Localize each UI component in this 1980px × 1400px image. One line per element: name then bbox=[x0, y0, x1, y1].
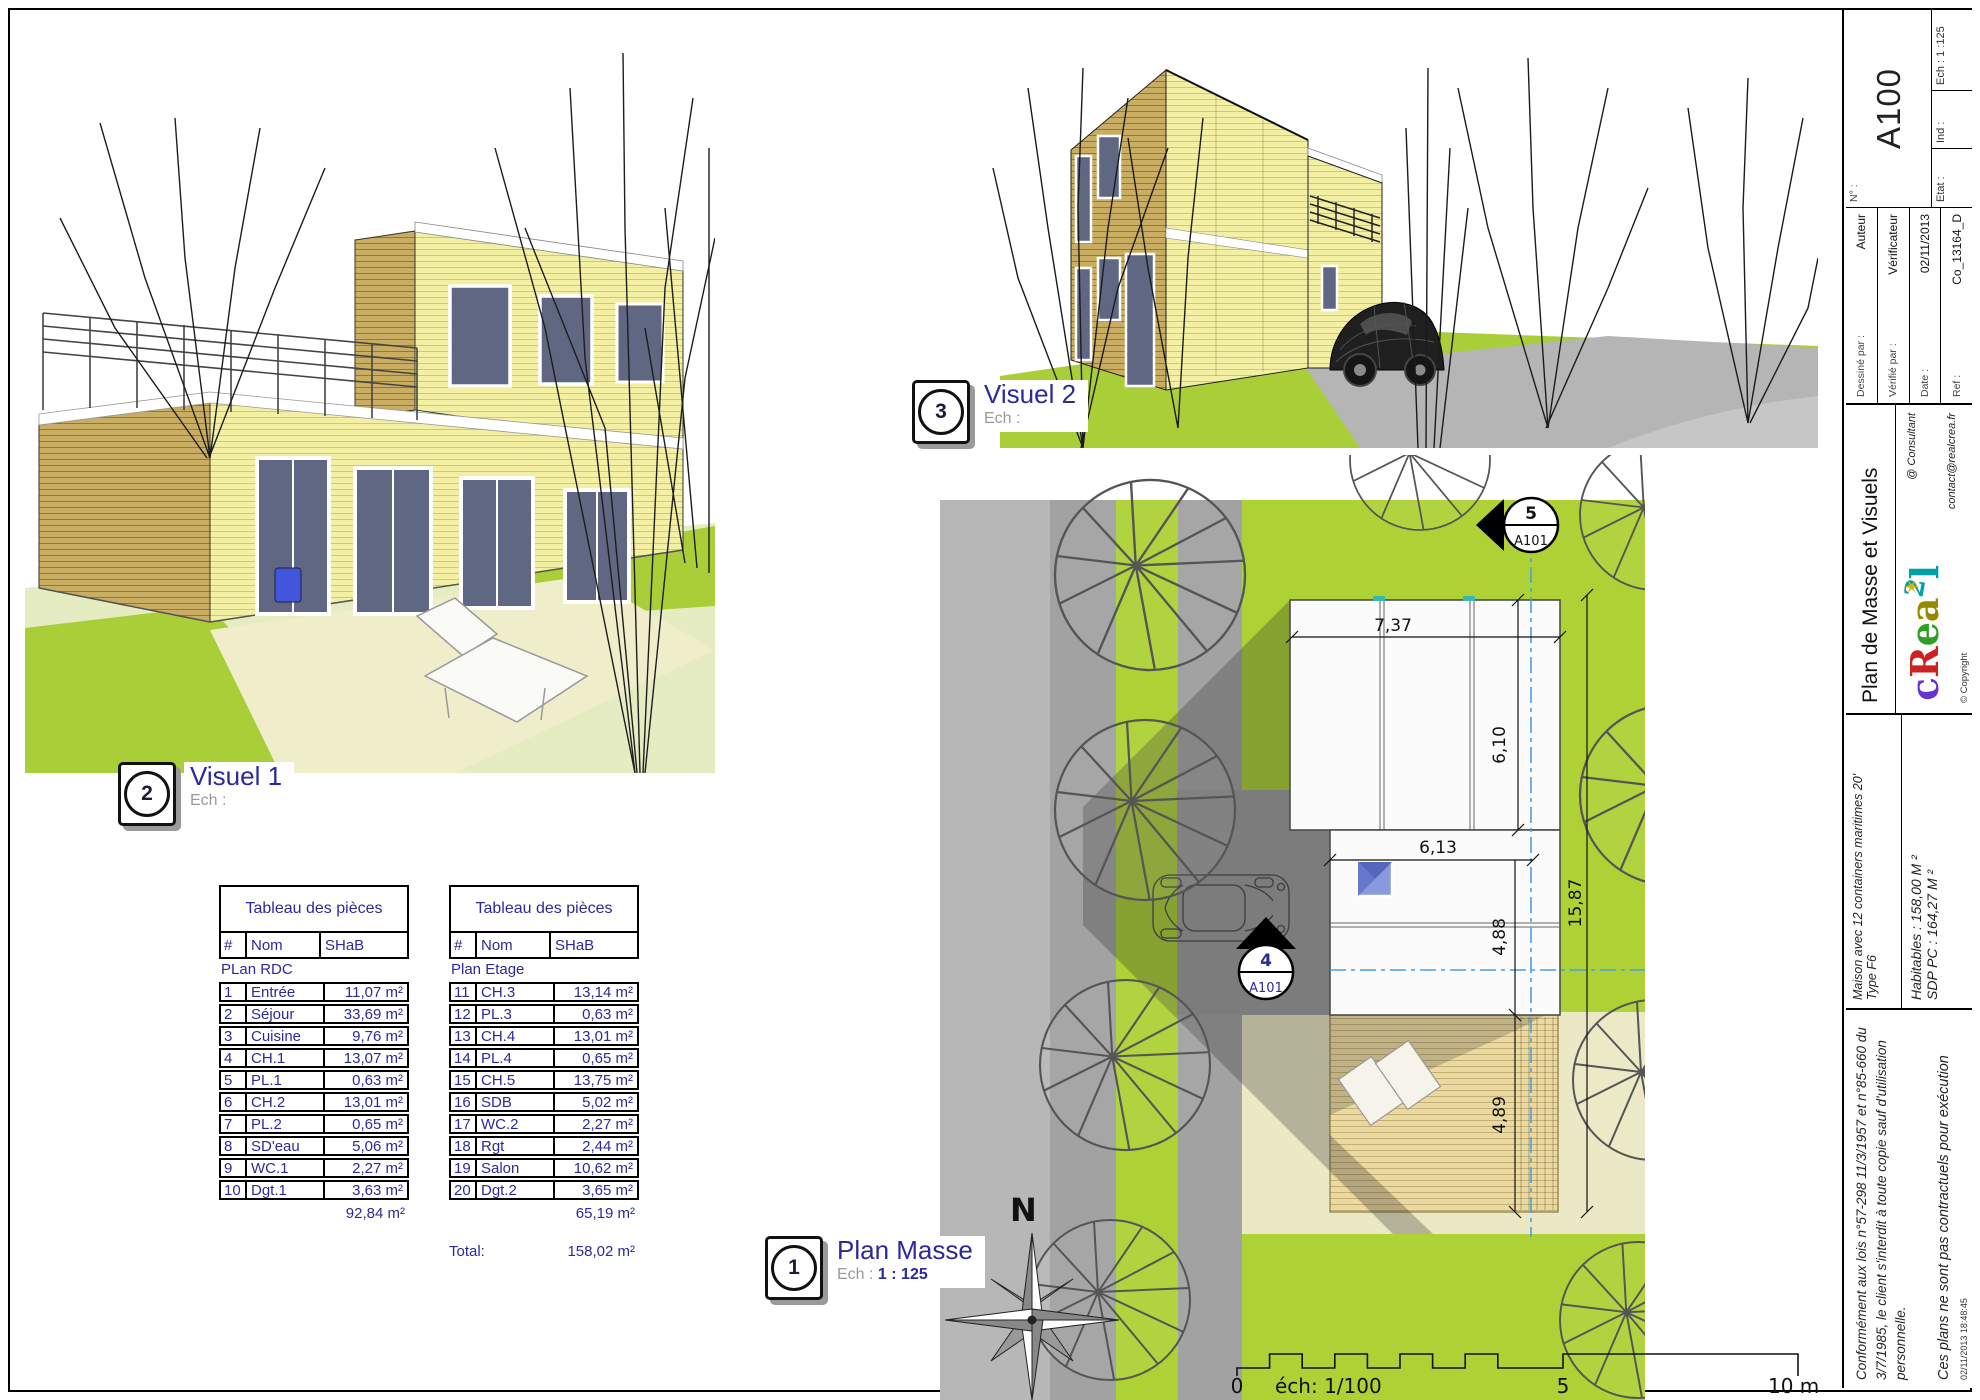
dim-middle: 6,13 bbox=[1419, 838, 1457, 858]
table-row: 17WC.22,27 m² bbox=[449, 1114, 639, 1134]
table-row: 9WC.12,27 m² bbox=[219, 1158, 409, 1178]
house bbox=[39, 222, 683, 622]
table-row: 8SD'eau5,06 m² bbox=[219, 1136, 409, 1156]
etat-label: Etat : bbox=[1932, 149, 1972, 207]
visual1-badge: 2 bbox=[118, 762, 176, 826]
total-label: Total: bbox=[449, 1243, 485, 1260]
drawn-by-value: Auteur bbox=[1854, 214, 1868, 249]
sheet-number-label: N° : bbox=[1848, 184, 1860, 202]
visual1-render bbox=[25, 28, 715, 773]
plan-scale-label: Ech : bbox=[837, 1266, 873, 1283]
col-num: # bbox=[221, 933, 247, 957]
table-row: 2Séjour33,69 m² bbox=[219, 1004, 409, 1024]
title-block: Conformément aux lois n°57-298 11/3/1957… bbox=[1842, 10, 1972, 1388]
plan-badge: 1 bbox=[765, 1236, 823, 1300]
table-row: 11CH.313,14 m² bbox=[449, 982, 639, 1002]
table-etage-title: Tableau des pièces bbox=[449, 885, 639, 933]
disclaimer-text: Ces plans ne sont pas contractuels pour … bbox=[1936, 1055, 1952, 1380]
scalebar-scale: éch: 1/100 bbox=[1275, 1374, 1382, 1398]
table-etage-section: Plan Etage bbox=[449, 959, 639, 980]
visual2-badge-number: 3 bbox=[918, 389, 964, 435]
visual2-render bbox=[988, 28, 1818, 448]
house-footprint bbox=[1290, 596, 1560, 1015]
table-rdc-section: PLan RDC bbox=[219, 959, 409, 980]
table-row: 1Entrée11,07 m² bbox=[219, 982, 409, 1002]
sheet-title: Plan de Masse et Visuels bbox=[1846, 405, 1896, 713]
marker4-number: 4 bbox=[1260, 951, 1272, 971]
area-habitable: Habitables : 158,00 M ² bbox=[1908, 723, 1924, 1000]
table-row: 5PL.10,63 m² bbox=[219, 1070, 409, 1090]
ref-value: Co_13164_D bbox=[1950, 214, 1964, 285]
table-rdc: Tableau des pièces # Nom SHaB PLan RDC 1… bbox=[219, 885, 409, 1222]
table-row: 18Rgt2,44 m² bbox=[449, 1136, 639, 1156]
table-row: 20Dgt.23,65 m² bbox=[449, 1180, 639, 1200]
table-row: 6CH.213,01 m² bbox=[219, 1092, 409, 1112]
table-rdc-subtotal: 92,84 m² bbox=[219, 1205, 409, 1222]
col-name: Nom bbox=[477, 933, 551, 957]
col-num: # bbox=[451, 933, 477, 957]
marker5-sheet: A101 bbox=[1514, 534, 1548, 549]
table-rdc-title: Tableau des pièces bbox=[219, 885, 409, 933]
project-type: Type F6 bbox=[1865, 723, 1879, 1000]
scale-bar: 0 éch: 1/100 5 10 m bbox=[1220, 1332, 1840, 1398]
table-row: 10Dgt.13,63 m² bbox=[219, 1180, 409, 1200]
col-area: SHaB bbox=[321, 937, 407, 954]
visual1-badge-number: 2 bbox=[124, 771, 170, 817]
table-row: 19Salon10,62 m² bbox=[449, 1158, 639, 1178]
dim-top: 7,37 bbox=[1374, 616, 1412, 636]
drawing-sheet: 2 Visuel 1 Ech : bbox=[0, 0, 1980, 1400]
table-row: 13CH.413,01 m² bbox=[449, 1026, 639, 1046]
ind-label: Ind : bbox=[1932, 91, 1972, 149]
date-label: Date : bbox=[1919, 369, 1931, 397]
tables-total-row: Total: 158,02 m² bbox=[449, 1243, 639, 1260]
scalebar-five: 5 bbox=[1557, 1374, 1570, 1398]
table-row: 3Cuisine9,76 m² bbox=[219, 1026, 409, 1046]
legal-text: Conformément aux lois n°57-298 11/3/1957… bbox=[1852, 1020, 1911, 1380]
checked-by-label: Vérifié par : bbox=[1887, 343, 1899, 397]
visual2-badge: 3 bbox=[912, 380, 970, 444]
project-section: Maison avec 12 containers maritimes 20' … bbox=[1846, 713, 1972, 1008]
admin-section: Dessiné par :Auteur Vérifié par :Vérific… bbox=[1846, 10, 1972, 403]
plan-badge-number: 1 bbox=[771, 1245, 817, 1291]
area-sdp: SDP PC : 164,27 M ² bbox=[1924, 723, 1940, 1000]
visual1-title: Visuel 1 bbox=[190, 763, 282, 790]
table-row: 14PL.40,65 m² bbox=[449, 1048, 639, 1068]
visual1-scale-label: Ech : bbox=[190, 792, 226, 809]
table-row: 7PL.20,65 m² bbox=[219, 1114, 409, 1134]
copyright-text: © Copyright bbox=[1959, 653, 1970, 703]
plan-scale-value: 1 : 125 bbox=[878, 1266, 928, 1283]
table-etage: Tableau des pièces # Nom SHaB Plan Etage… bbox=[449, 885, 639, 1222]
table-row: 4CH.113,07 m² bbox=[219, 1048, 409, 1068]
visual2-callout: 3 Visuel 2 Ech : bbox=[912, 380, 1088, 444]
project-description: Maison avec 12 containers maritimes 20' bbox=[1851, 723, 1865, 1000]
interior-object bbox=[275, 568, 301, 602]
scale-label: Ech : 1 :125 bbox=[1932, 10, 1972, 91]
skylight bbox=[1358, 862, 1392, 896]
scalebar-ten: 10 m bbox=[1768, 1374, 1819, 1398]
dim-middle-right: 4,88 bbox=[1490, 918, 1510, 956]
total-value: 158,02 m² bbox=[567, 1243, 635, 1260]
col-area: SHaB bbox=[551, 937, 637, 954]
sheet-number: A100 bbox=[1870, 68, 1908, 149]
print-timestamp: 02/11/2013 18:48:45 bbox=[1959, 1298, 1969, 1380]
drawn-by-label: Dessiné par : bbox=[1855, 335, 1867, 397]
visual1-callout: 2 Visuel 1 Ech : bbox=[118, 762, 294, 826]
table-row: 16SDB5,02 m² bbox=[449, 1092, 639, 1112]
dim-overall: 15,87 bbox=[1566, 879, 1586, 928]
dim-deck: 4,89 bbox=[1490, 1096, 1510, 1134]
marker5-number: 5 bbox=[1525, 504, 1537, 524]
date-value: 02/11/2013 bbox=[1918, 214, 1932, 273]
scalebar-zero: 0 bbox=[1231, 1374, 1244, 1398]
brand-section: Plan de Masse et Visuels cRea2l ✶ © Copy… bbox=[1846, 403, 1972, 713]
contact-email: contact@realcrea.fr bbox=[1946, 413, 1958, 509]
table-row: 15CH.513,75 m² bbox=[449, 1070, 639, 1090]
checked-by-value: Vérificateur bbox=[1886, 214, 1900, 275]
legal-section: Conformément aux lois n°57-298 11/3/1957… bbox=[1846, 1008, 1972, 1388]
table-etage-subtotal: 65,19 m² bbox=[449, 1205, 639, 1222]
north-label: N bbox=[1010, 1191, 1037, 1229]
table-row: 12PL.30,63 m² bbox=[449, 1004, 639, 1024]
col-name: Nom bbox=[247, 933, 321, 957]
marker4-sheet: A101 bbox=[1249, 981, 1283, 996]
consultant-text: @ Consultant bbox=[1906, 413, 1918, 480]
visual2-scale-label: Ech : bbox=[984, 410, 1020, 427]
north-compass: N bbox=[935, 1183, 1135, 1400]
logo-star-icon: ✶ bbox=[1900, 578, 1925, 595]
ref-label: Ref : bbox=[1951, 375, 1963, 397]
visual2-title: Visuel 2 bbox=[984, 381, 1076, 408]
dim-upper-right: 6,10 bbox=[1490, 726, 1510, 764]
